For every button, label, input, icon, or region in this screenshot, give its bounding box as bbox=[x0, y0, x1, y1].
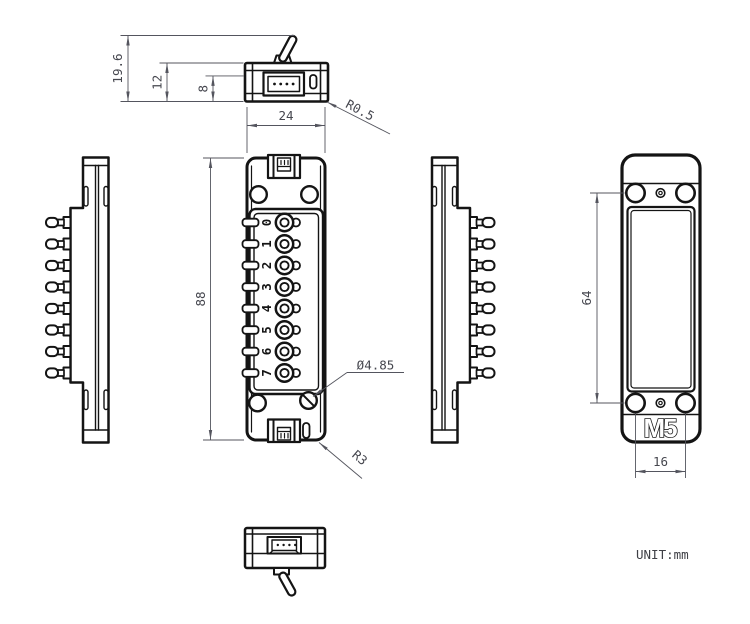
terminal-pin bbox=[46, 368, 71, 379]
dim-label: R3 bbox=[349, 447, 370, 468]
center-hole bbox=[656, 399, 665, 408]
terminal-pin bbox=[470, 368, 495, 379]
dim-label: 8 bbox=[196, 85, 211, 93]
dim-label: Ø4.85 bbox=[357, 358, 395, 373]
screw-hole bbox=[249, 395, 266, 412]
screw-hole bbox=[626, 184, 644, 202]
terminal-pin bbox=[46, 282, 71, 293]
toggle-slot bbox=[310, 75, 317, 89]
terminal-label-0: 0 bbox=[259, 219, 274, 227]
terminal-pin bbox=[470, 282, 495, 293]
front-view: 0 1 2 3 4 5 6 7 bbox=[243, 155, 326, 442]
dimensions: 19.6 12 8 R0.5 bbox=[110, 36, 689, 563]
screw-hole bbox=[676, 394, 694, 412]
terminal-pin bbox=[470, 346, 495, 357]
mount-slot bbox=[453, 390, 457, 410]
leader-corner-radius: R3 bbox=[319, 443, 370, 479]
terminal-pin bbox=[46, 346, 71, 357]
screw-hole bbox=[626, 394, 644, 412]
connector-pin bbox=[294, 544, 296, 546]
mechanical-drawing: 0 1 2 3 4 5 6 7 bbox=[0, 0, 750, 624]
terminal-pin bbox=[470, 303, 495, 314]
back-panel bbox=[628, 207, 695, 392]
connector-pin bbox=[292, 83, 295, 86]
dim-label: 16 bbox=[653, 454, 668, 469]
terminal-label-2: 2 bbox=[259, 262, 274, 270]
dim-body-length: 88 bbox=[193, 158, 244, 440]
center-hole bbox=[656, 189, 665, 198]
leader-edge-radius: R0.5 bbox=[327, 96, 390, 134]
connector-pin bbox=[273, 83, 276, 86]
terminal-pin bbox=[470, 217, 495, 228]
screw-hole bbox=[676, 184, 694, 202]
left-side-view bbox=[46, 158, 109, 443]
bottom-view bbox=[245, 528, 325, 597]
m5-logo: M5 bbox=[643, 413, 677, 443]
terminal-label-5: 5 bbox=[259, 326, 274, 334]
terminal-pin bbox=[46, 303, 71, 314]
drawing-canvas: 0 1 2 3 4 5 6 7 bbox=[0, 0, 750, 624]
leader-hole-diameter: Ø4.85 bbox=[313, 358, 404, 397]
terminal-label-3: 3 bbox=[259, 283, 274, 291]
toggle-lever bbox=[278, 35, 298, 63]
back-view: M5 bbox=[622, 155, 700, 443]
toggle-slot bbox=[303, 423, 310, 438]
top-view bbox=[245, 35, 328, 102]
terminal-label-7: 7 bbox=[259, 369, 274, 377]
right-side-view bbox=[432, 158, 495, 443]
terminal-pin bbox=[470, 239, 495, 250]
screw-hole bbox=[250, 186, 267, 203]
terminal-label-6: 6 bbox=[259, 348, 274, 356]
dim-label: 19.6 bbox=[110, 53, 125, 83]
terminal-pin bbox=[46, 217, 71, 228]
mount-slot bbox=[84, 187, 88, 207]
dim-connector-height: 8 bbox=[196, 76, 244, 102]
screw-hole bbox=[301, 186, 318, 203]
terminal-pin bbox=[46, 260, 71, 271]
connector-pin bbox=[288, 544, 290, 546]
mount-slot bbox=[104, 187, 108, 207]
terminal-pin bbox=[46, 239, 71, 250]
terminal-pin bbox=[470, 325, 495, 336]
connector-pin bbox=[286, 83, 289, 86]
mount-slot bbox=[104, 390, 108, 410]
dim-body-height: 12 bbox=[150, 63, 244, 102]
dim-label: 88 bbox=[193, 291, 208, 306]
dim-body-width: 24 bbox=[247, 107, 325, 153]
terminal-pin bbox=[46, 325, 71, 336]
side-body bbox=[71, 158, 109, 443]
mount-slot bbox=[433, 187, 437, 207]
dim-label: 24 bbox=[278, 108, 293, 123]
connector-pin bbox=[277, 544, 279, 546]
dim-label: 12 bbox=[150, 75, 165, 90]
connector-pin bbox=[279, 83, 282, 86]
toggle-lever bbox=[278, 571, 297, 597]
mount-slot bbox=[453, 187, 457, 207]
unit-note: UNIT:mm bbox=[636, 547, 689, 562]
dim-label: R0.5 bbox=[343, 96, 377, 123]
connector-pin bbox=[282, 544, 284, 546]
dim-label: 64 bbox=[579, 290, 594, 305]
terminal-label-4: 4 bbox=[259, 305, 274, 313]
dim-hole-pitch-vertical: 64 bbox=[579, 193, 625, 403]
side-body bbox=[432, 158, 470, 443]
terminal-label-1: 1 bbox=[259, 240, 274, 248]
terminal-pin bbox=[470, 260, 495, 271]
mount-slot bbox=[84, 390, 88, 410]
mount-slot bbox=[433, 390, 437, 410]
